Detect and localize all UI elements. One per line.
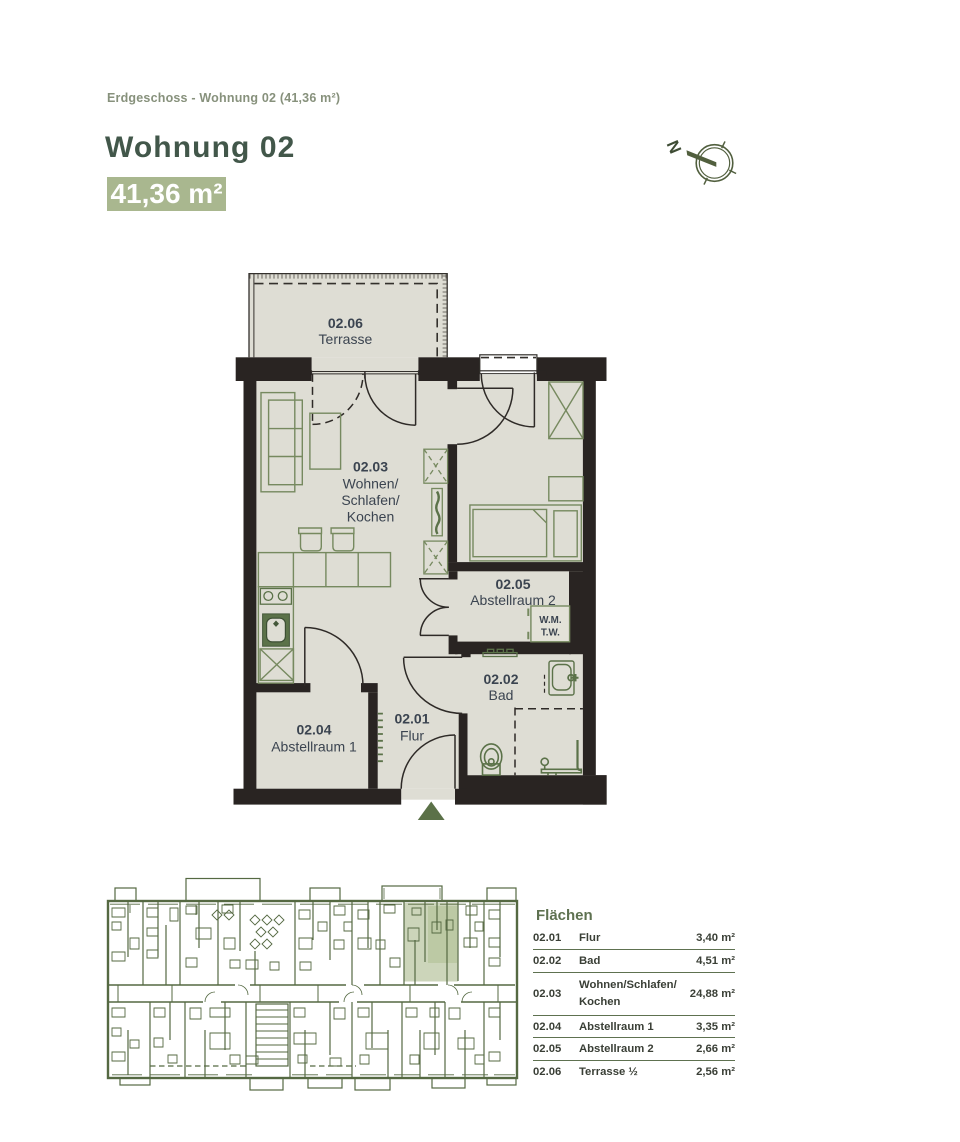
svg-text:Kochen: Kochen: [347, 509, 394, 525]
svg-text:Flur: Flur: [400, 728, 424, 744]
svg-text:Bad: Bad: [489, 687, 514, 703]
svg-text:W.M.: W.M.: [539, 615, 562, 626]
svg-text:02.02: 02.02: [483, 671, 518, 687]
svg-text:T.W.: T.W.: [541, 628, 560, 639]
svg-text:02.03: 02.03: [353, 459, 388, 475]
svg-text:02.04: 02.04: [296, 722, 331, 738]
svg-text:02.06: 02.06: [328, 315, 363, 331]
svg-text:Wohnen/: Wohnen/: [343, 476, 399, 492]
svg-text:Abstellraum 2: Abstellraum 2: [470, 592, 556, 608]
svg-text:N: N: [663, 137, 685, 156]
svg-text:Schlafen/: Schlafen/: [341, 492, 399, 508]
svg-text:Terrasse: Terrasse: [319, 331, 373, 347]
svg-text:02.05: 02.05: [495, 576, 530, 592]
svg-text:02.01: 02.01: [394, 711, 429, 727]
svg-text:Abstellraum 1: Abstellraum 1: [271, 739, 357, 755]
